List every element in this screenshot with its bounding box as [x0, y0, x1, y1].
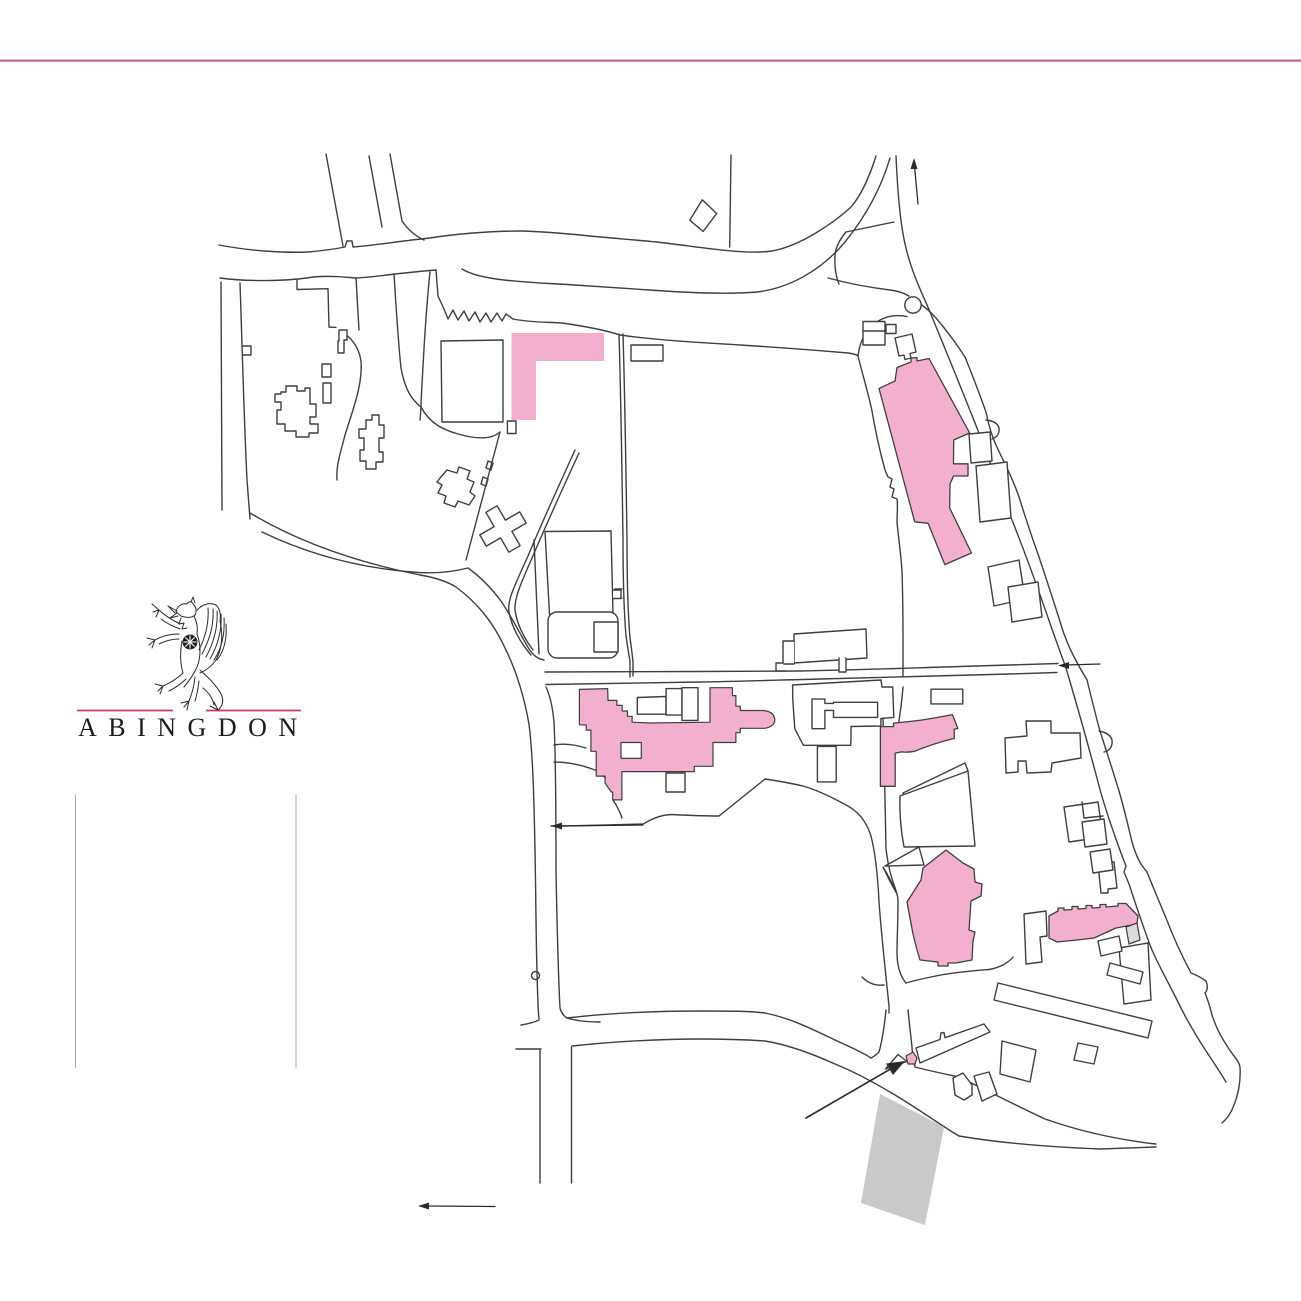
svg-text:ABINGDON: ABINGDON [78, 713, 309, 742]
